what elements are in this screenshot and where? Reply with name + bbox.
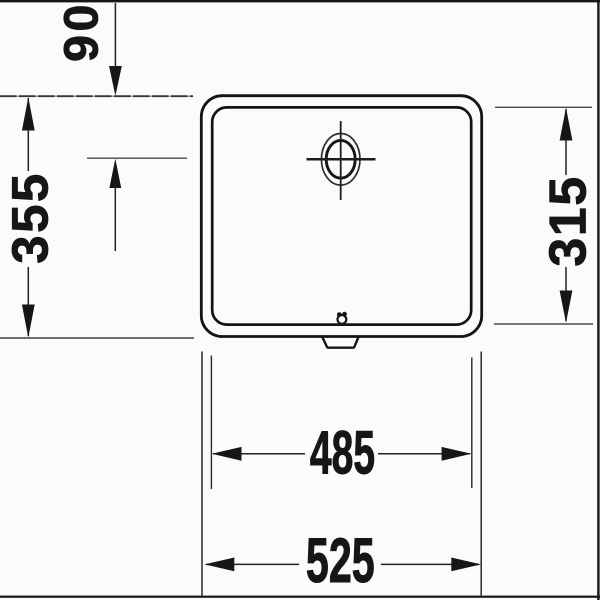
svg-text:485: 485	[310, 419, 375, 487]
svg-text:90: 90	[55, 1, 109, 62]
svg-text:355: 355	[1, 171, 58, 264]
svg-text:315: 315	[540, 175, 598, 266]
svg-text:525: 525	[306, 526, 375, 596]
